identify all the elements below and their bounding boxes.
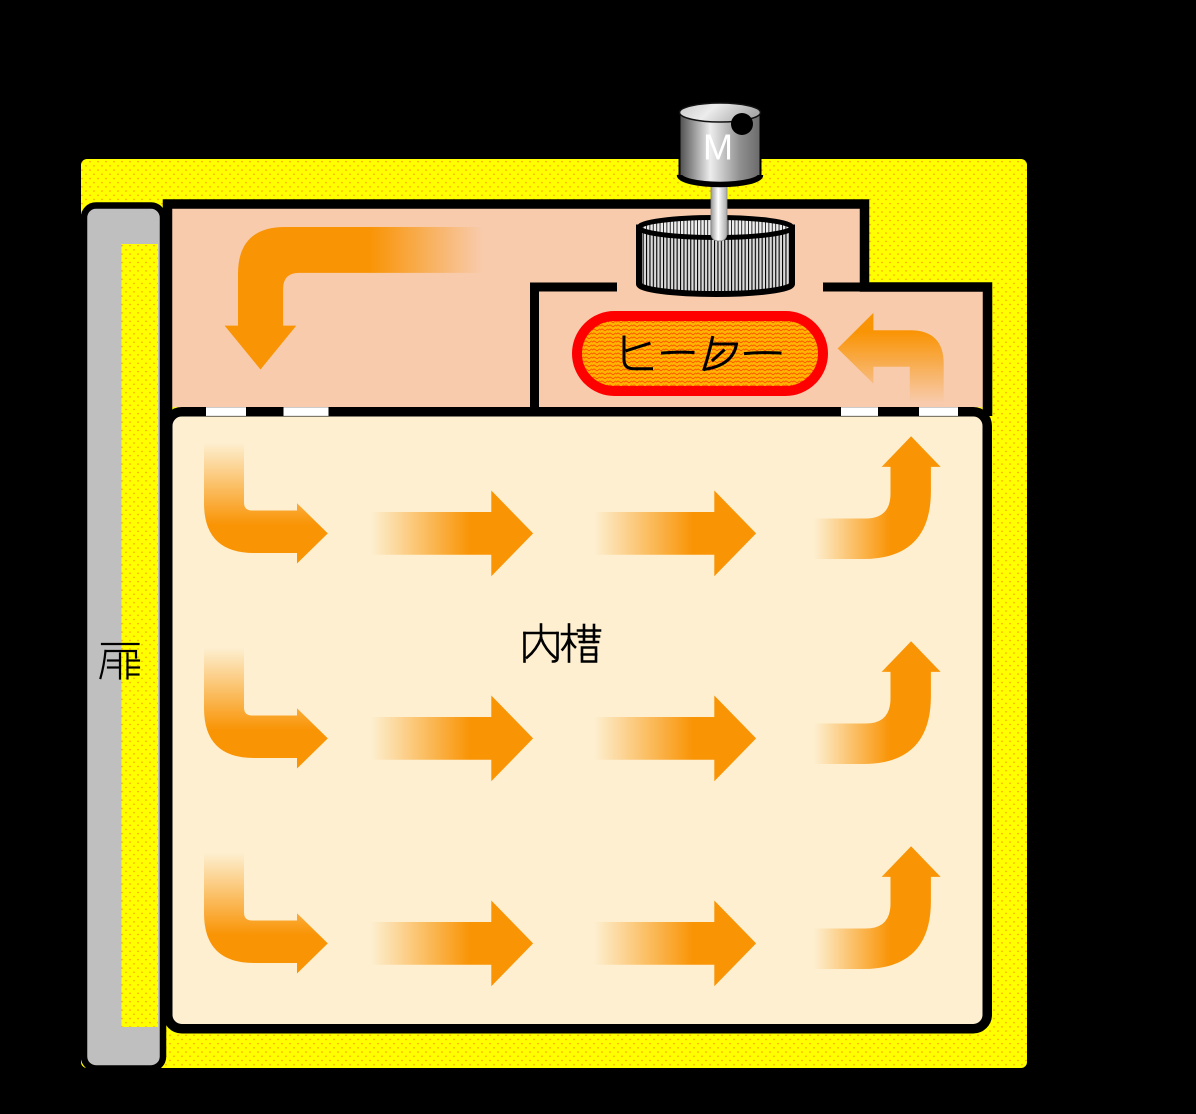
svg-text:M: M xyxy=(703,127,733,168)
